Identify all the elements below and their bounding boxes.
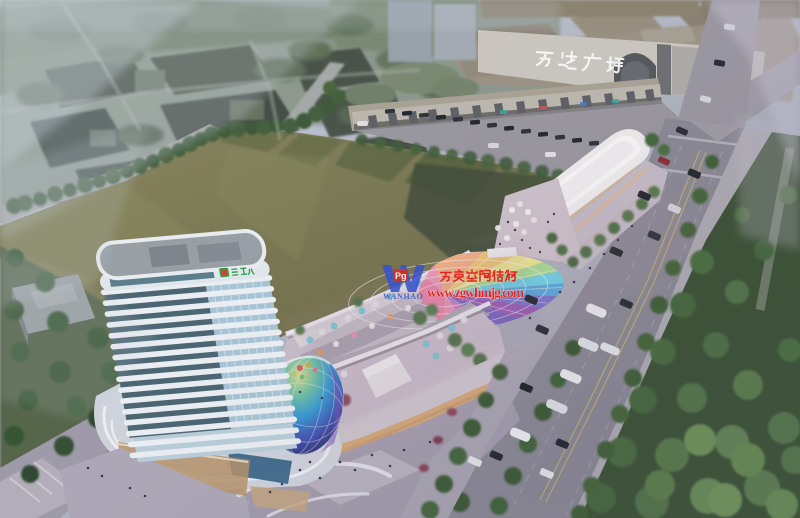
svg-text:WANHAO: WANHAO [383,292,424,301]
svg-text:www.zgwhmjg.com: www.zgwhmjg.com [427,285,525,300]
svg-text:Pg: Pg [395,271,407,281]
